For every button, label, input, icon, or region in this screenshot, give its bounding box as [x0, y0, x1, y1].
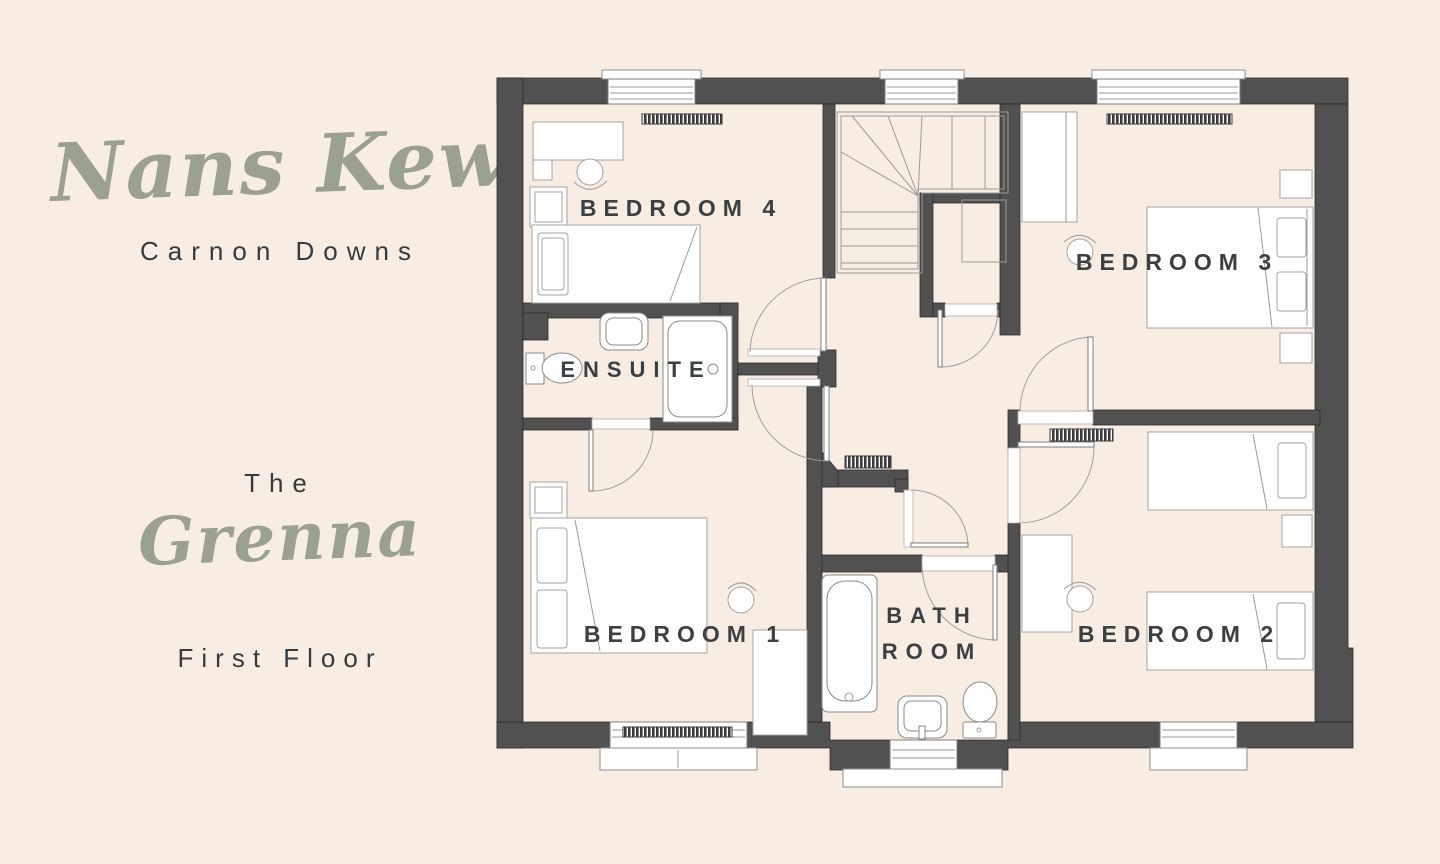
pillow	[1277, 218, 1306, 257]
door-ensuite	[589, 430, 593, 491]
door-cupboard	[938, 310, 942, 367]
desk	[533, 122, 623, 160]
furniture-bedroom3	[1022, 112, 1313, 363]
radiator-bedroom4	[642, 114, 722, 124]
airing-cupboard	[962, 200, 1006, 262]
desk	[1022, 535, 1072, 632]
basin-tap	[919, 726, 925, 739]
door-bedroom3	[1088, 337, 1093, 411]
floor-plan: BEDROOM 4 BEDROOM 3 ENSUITE BEDROOM 1 BA…	[490, 60, 1365, 790]
chair	[728, 587, 754, 613]
radiator-landing	[845, 456, 891, 468]
furniture-bedroom1	[530, 482, 807, 735]
door-bathroom	[993, 565, 997, 640]
door-bedroom2	[1018, 442, 1094, 447]
bedside-table	[1280, 170, 1312, 198]
door-store	[911, 543, 968, 547]
door-bedroom4	[821, 278, 826, 351]
label-bathroom-line2: ROOM	[882, 639, 982, 664]
plot-name: Grenna	[0, 488, 561, 585]
bedside-table	[1282, 515, 1312, 547]
radiator-bedroom2	[1050, 429, 1113, 441]
label-bathroom-line1: BATH	[886, 603, 977, 628]
pillow	[1278, 443, 1306, 498]
pillow	[537, 528, 567, 583]
stairs	[837, 112, 1008, 273]
window-bedroom2	[1150, 722, 1247, 770]
label-bedroom3: BEDROOM 3	[1076, 249, 1278, 275]
window-landing	[880, 70, 964, 104]
bedside-table	[1280, 333, 1312, 363]
pillow	[1277, 272, 1306, 311]
development-name: Nans Kew	[0, 108, 561, 221]
toilet-cistern	[963, 722, 996, 738]
floor-plan-svg: BEDROOM 4 BEDROOM 3 ENSUITE BEDROOM 1 BA…	[490, 60, 1365, 790]
window-bedroom4	[602, 70, 701, 104]
label-bedroom4: BEDROOM 4	[580, 195, 782, 221]
pillow	[1277, 603, 1305, 659]
chair	[577, 159, 603, 185]
radiator-bedroom1	[623, 727, 732, 737]
chair	[1067, 586, 1093, 612]
label-ensuite: ENSUITE	[560, 357, 711, 382]
door-bedroom1	[824, 386, 829, 461]
desk	[1022, 112, 1077, 222]
label-bedroom1: BEDROOM 1	[584, 621, 786, 647]
development-location: Carnon Downs	[0, 236, 560, 267]
brand-panel: Nans Kew Carnon Downs The Grenna First F…	[0, 0, 560, 864]
radiator-bedroom3	[1107, 114, 1232, 124]
toilet	[963, 682, 997, 722]
floor-title: First Floor	[0, 643, 560, 674]
window-bedroom3	[1092, 70, 1245, 104]
label-bedroom2: BEDROOM 2	[1078, 621, 1280, 647]
